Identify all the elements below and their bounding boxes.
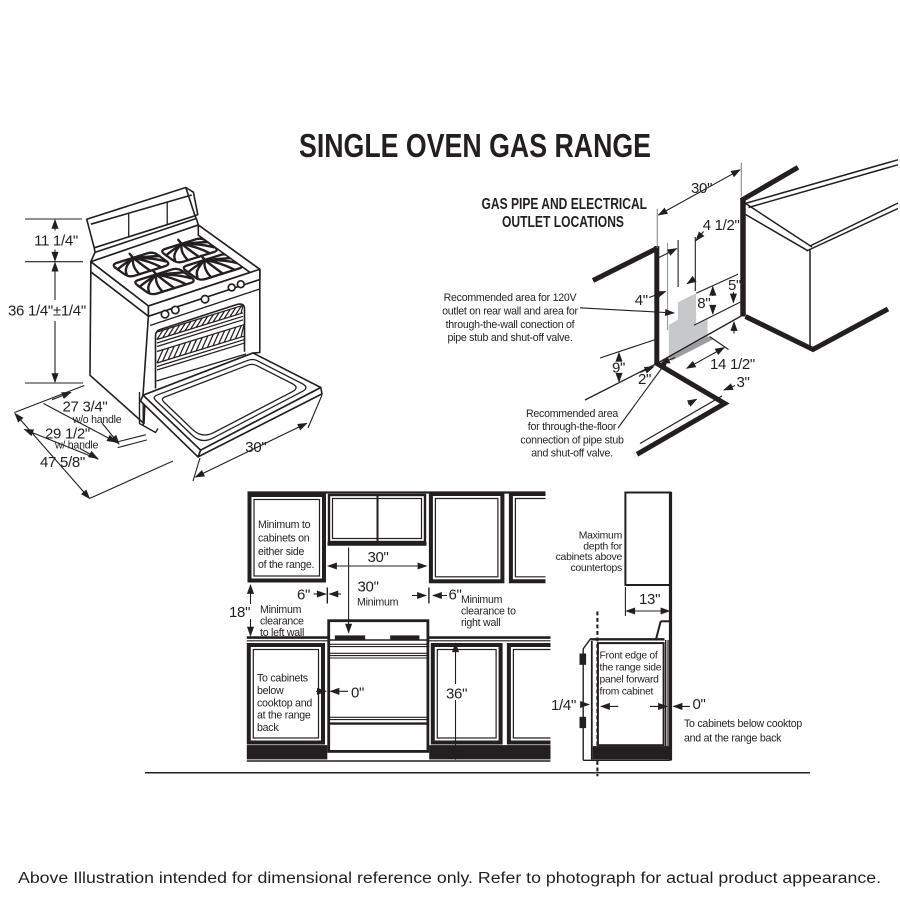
svg-text:pipe stub and shut-off valve.: pipe stub and shut-off valve. [447,332,572,344]
svg-text:clearance: clearance [260,615,304,627]
svg-text:SINGLE OVEN GAS RANGE: SINGLE OVEN GAS RANGE [299,127,651,164]
svg-text:36": 36" [446,686,467,703]
svg-text:30": 30" [367,549,388,566]
svg-text:Maximum: Maximum [579,531,622,542]
svg-text:1/4": 1/4" [551,697,576,714]
svg-text:w/o handle: w/o handle [72,414,122,426]
svg-text:4": 4" [635,292,648,309]
svg-text:for through-the-floor: for through-the-floor [528,421,617,433]
svg-text:2": 2" [638,371,651,388]
svg-text:47 5/8": 47 5/8" [40,454,85,471]
svg-text:6": 6" [297,587,310,604]
svg-text:depth for: depth for [583,541,623,552]
svg-text:cabinets on: cabinets on [258,532,310,544]
svg-text:11 1/4": 11 1/4" [34,233,78,250]
svg-text:27 3/4": 27 3/4" [63,399,108,416]
svg-text:of the range.: of the range. [258,559,314,571]
svg-text:the range side: the range side [600,663,662,674]
svg-text:6": 6" [449,587,462,604]
svg-text:from cabinet: from cabinet [600,687,654,698]
svg-text:right wall: right wall [461,617,500,629]
svg-text:14 1/2": 14 1/2" [710,356,755,373]
svg-text:9": 9" [612,360,625,377]
svg-text:Minimum: Minimum [357,596,399,608]
svg-text:back: back [257,722,279,734]
svg-text:Recommended area for 120V: Recommended area for 120V [444,292,578,304]
svg-text:Above Illustration intended fo: Above Illustration intended for dimensio… [18,870,881,887]
svg-text:connection of pipe stub: connection of pipe stub [520,434,624,446]
svg-text:panel forward: panel forward [600,675,660,686]
svg-text:To cabinets: To cabinets [257,673,308,685]
svg-text:cooktop and: cooktop and [257,697,312,709]
svg-text:0": 0" [351,684,364,701]
svg-text:to left wall: to left wall [260,627,304,639]
svg-text:w/ handle: w/ handle [54,440,98,452]
svg-text:Minimum: Minimum [260,604,302,616]
svg-text:and shut-off valve.: and shut-off valve. [531,448,613,460]
svg-text:OUTLET LOCATIONS: OUTLET LOCATIONS [502,214,624,231]
svg-text:30": 30" [358,578,379,595]
svg-text:3": 3" [737,374,750,391]
svg-text:8": 8" [697,295,710,312]
svg-text:and at the range back: and at the range back [684,733,782,745]
svg-text:cabinets above: cabinets above [556,552,623,563]
svg-text:GAS PIPE AND ELECTRICAL: GAS PIPE AND ELECTRICAL [482,196,648,213]
svg-text:Minimum: Minimum [461,594,503,606]
svg-text:through-the-wall conection of: through-the-wall conection of [446,319,575,331]
svg-text:13": 13" [639,591,660,608]
svg-text:4 1/2": 4 1/2" [703,217,740,234]
svg-text:clearance to: clearance to [461,605,516,617]
svg-text:30": 30" [245,439,266,456]
svg-text:To cabinets below cooktop: To cabinets below cooktop [684,718,802,730]
svg-text:30": 30" [691,180,712,197]
svg-text:36 1/4"±1/4": 36 1/4"±1/4" [8,303,86,320]
svg-text:outlet on rear wall and area f: outlet on rear wall and area for [442,305,578,317]
svg-text:Minimum to: Minimum to [258,519,311,531]
svg-text:countertops: countertops [570,563,622,574]
svg-text:0": 0" [693,696,706,713]
svg-text:below: below [257,685,284,697]
svg-text:Front edge of: Front edge of [600,651,658,662]
svg-text:5": 5" [728,277,741,294]
svg-text:either side: either side [258,546,304,558]
svg-text:Recommended area: Recommended area [526,408,618,420]
svg-text:at the range: at the range [257,710,311,722]
svg-text:18": 18" [229,604,250,621]
